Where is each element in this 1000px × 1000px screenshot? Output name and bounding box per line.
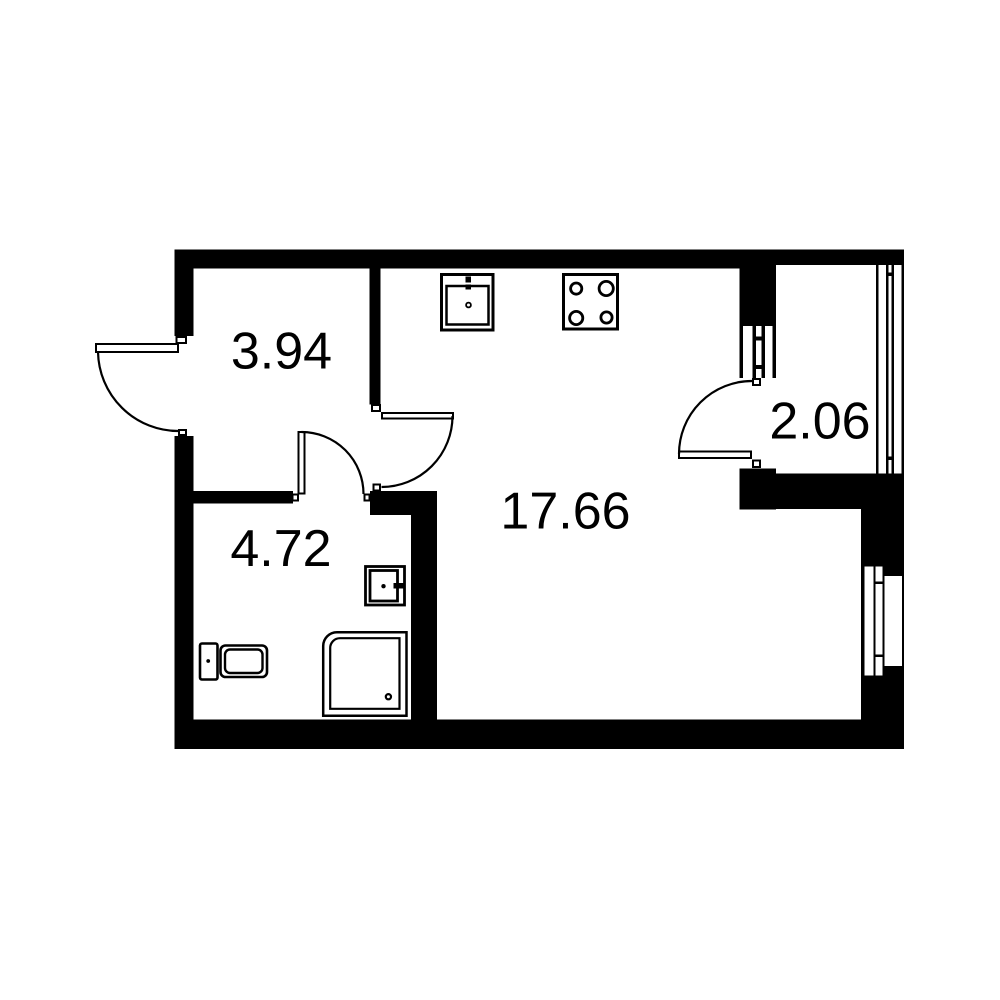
svg-text:2.06: 2.06 (769, 393, 870, 451)
svg-text:3.94: 3.94 (231, 323, 332, 381)
svg-text:17.66: 17.66 (500, 483, 630, 541)
svg-text:4.72: 4.72 (230, 520, 331, 578)
